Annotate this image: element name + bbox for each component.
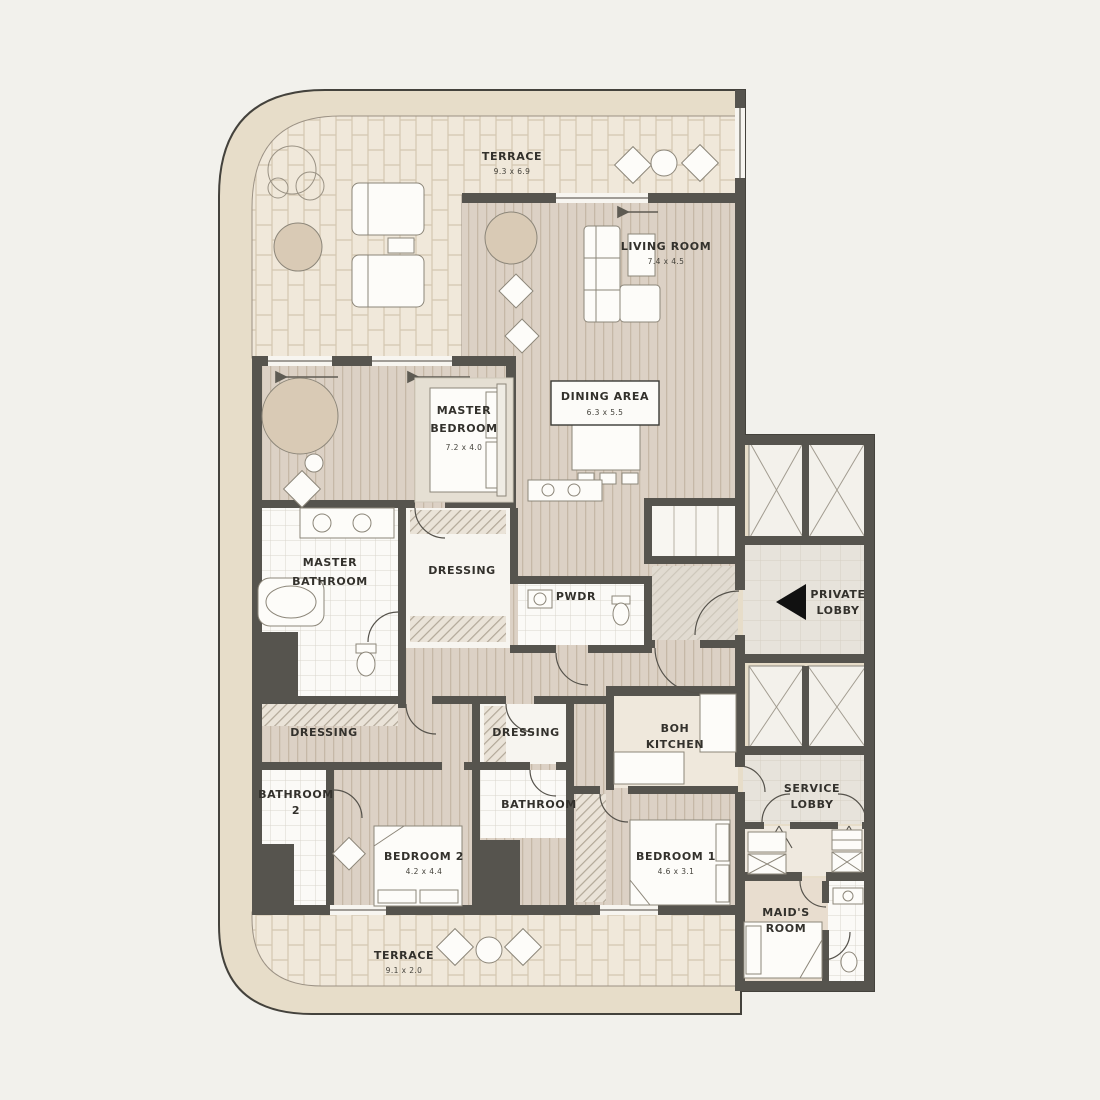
double-vanity — [300, 508, 394, 538]
dims-living: 7.4 x 4.5 — [648, 257, 685, 266]
label-pwdr: PWDR — [556, 590, 596, 603]
dims-bedroom1: 4.6 x 3.1 — [658, 867, 695, 876]
elevator-1 — [749, 441, 804, 539]
label-service-lobby-1: SERVICE — [784, 782, 840, 795]
elevator-4 — [808, 666, 866, 748]
floor-plan-drawing: TERRACE 9.3 x 6.9 LIVING ROOM 7.4 x 4.5 … — [0, 0, 1100, 1100]
kitchen-counter — [614, 752, 684, 784]
label-boh-2: KITCHEN — [646, 738, 704, 751]
dims-master-bedroom: 7.2 x 4.0 — [446, 443, 483, 452]
label-terrace-top: TERRACE — [482, 150, 542, 163]
bed-2 — [374, 826, 462, 906]
kitchen-counter — [700, 694, 736, 752]
dims-terrace-bottom: 9.1 x 2.0 — [386, 966, 423, 975]
dims-terrace-top: 9.3 x 6.9 — [494, 167, 531, 176]
dims-bedroom2: 4.2 x 4.4 — [406, 867, 443, 876]
master-bed — [430, 384, 506, 496]
buffet-console — [528, 480, 602, 501]
label-terrace-bottom: TERRACE — [374, 949, 434, 962]
round-rug — [262, 378, 338, 454]
label-bathroom2-2: 2 — [292, 804, 300, 817]
bath-vanity-dark — [254, 632, 298, 702]
elevator-3 — [749, 666, 804, 748]
toilet — [356, 644, 376, 676]
label-dressing-center: DRESSING — [492, 726, 560, 739]
label-master-bedroom-1: MASTER — [437, 404, 491, 417]
bedroom1-wardrobe — [576, 794, 606, 902]
label-master-bath-1: MASTER — [303, 556, 357, 569]
label-bathroom: BATHROOM — [501, 798, 577, 811]
hall-closet — [652, 506, 738, 556]
dining-label-box — [551, 381, 659, 425]
label-bedroom1: BEDROOM 1 — [636, 850, 716, 863]
wardrobe-strip — [258, 702, 398, 726]
label-private-lobby-1: PRIVATE — [810, 588, 865, 601]
label-dressing-master: DRESSING — [428, 564, 496, 577]
label-private-lobby-2: LOBBY — [816, 604, 860, 617]
dims-dining: 6.3 x 5.5 — [587, 408, 624, 417]
floor-plan-page: TERRACE 9.3 x 6.9 LIVING ROOM 7.4 x 4.5 … — [0, 0, 1100, 1100]
terrace-round-table — [274, 223, 322, 271]
label-service-lobby-2: LOBBY — [790, 798, 834, 811]
label-living: LIVING ROOM — [621, 240, 712, 253]
dark-closet — [252, 844, 294, 905]
label-master-bedroom-2: BEDROOM — [430, 422, 497, 435]
label-dressing-left: DRESSING — [290, 726, 358, 739]
round-rug — [485, 212, 537, 264]
stool — [305, 454, 323, 472]
dark-closet — [472, 840, 520, 906]
label-maids-2: ROOM — [766, 922, 807, 935]
label-boh-1: BOH — [661, 722, 690, 735]
label-dining: DINING AREA — [561, 390, 649, 403]
elevator-2 — [808, 441, 866, 539]
wardrobe-strip — [410, 616, 506, 642]
label-master-bath-2: BATHROOM — [292, 575, 368, 588]
label-bathroom2-1: BATHROOM — [258, 788, 334, 801]
label-maids-1: MAID'S — [762, 906, 810, 919]
label-bedroom2: BEDROOM 2 — [384, 850, 464, 863]
